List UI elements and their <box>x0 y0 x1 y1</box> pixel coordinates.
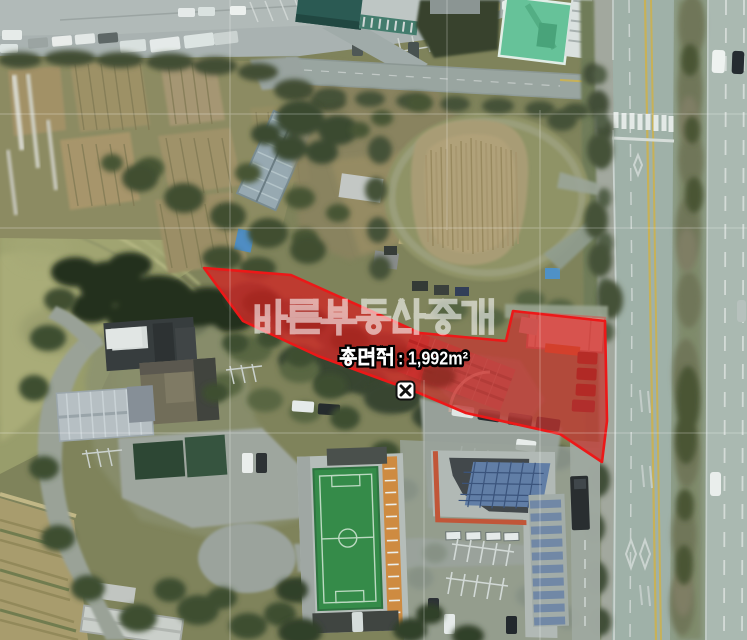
svg-text:: 1,992m²: : 1,992m² <box>398 349 468 369</box>
